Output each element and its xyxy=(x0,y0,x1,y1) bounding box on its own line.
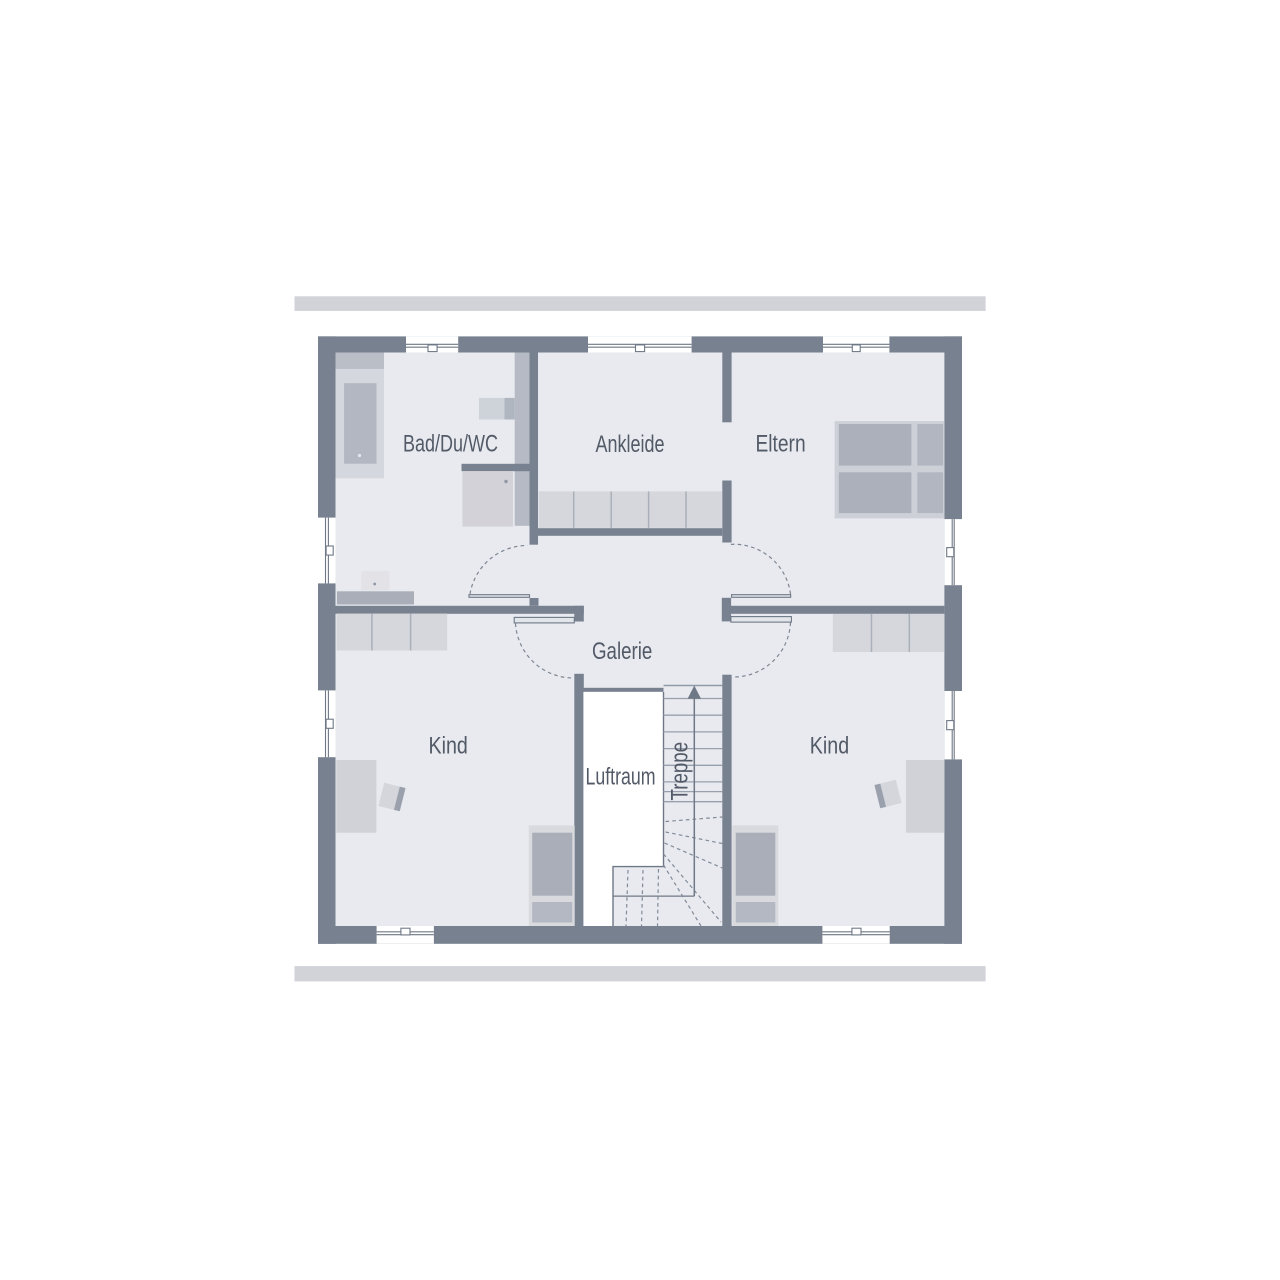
svg-text:Ankleide: Ankleide xyxy=(596,431,665,457)
svg-text:Bad/Du/WC: Bad/Du/WC xyxy=(403,431,498,457)
svg-text:Treppe: Treppe xyxy=(666,742,693,801)
svg-text:Galerie: Galerie xyxy=(592,638,652,665)
svg-text:Kind: Kind xyxy=(429,732,468,759)
svg-text:Luftraum: Luftraum xyxy=(586,764,656,790)
svg-text:Eltern: Eltern xyxy=(756,429,806,457)
svg-text:Kind: Kind xyxy=(810,732,849,759)
